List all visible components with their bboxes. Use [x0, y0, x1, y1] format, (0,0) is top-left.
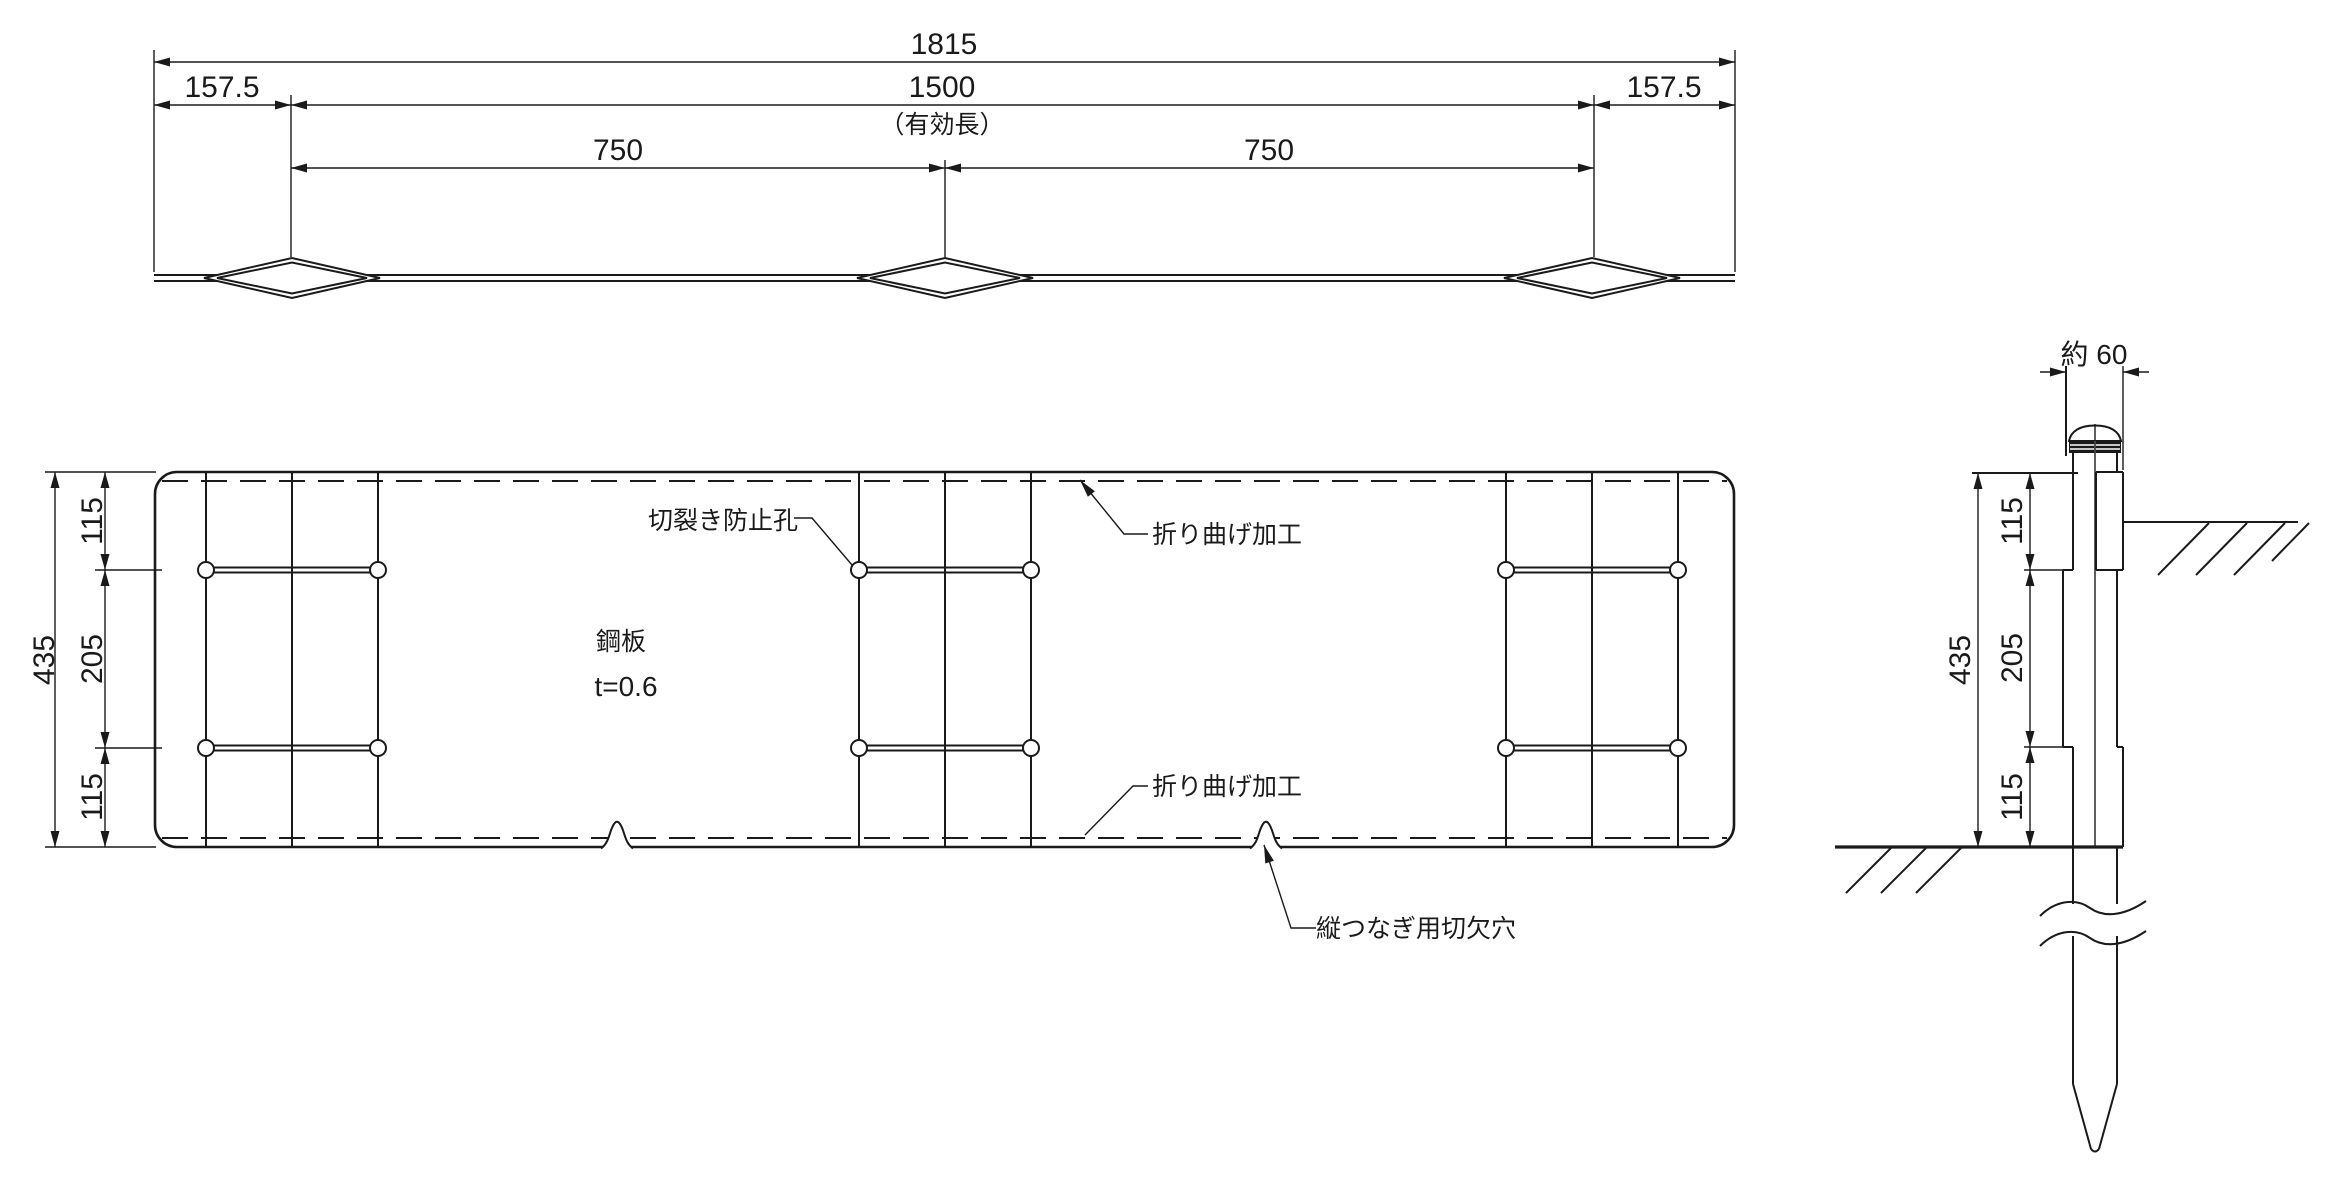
joining-notch-left — [601, 822, 633, 849]
side-view: 約 60 435 115 205 115 — [1835, 339, 2309, 1152]
dim-effective-length: 1500 — [909, 71, 976, 104]
dim-top-section: 115 — [76, 497, 109, 545]
ground-hatch-left — [1846, 848, 1961, 893]
dim-middle-section: 205 — [76, 634, 109, 684]
side-outline — [2063, 453, 2123, 1152]
label-thickness: t=0.6 — [594, 671, 657, 702]
dim-bottom-section: 115 — [76, 773, 109, 821]
label-fold-bottom: 折り曲げ加工 — [1152, 773, 1302, 801]
dim-left-margin: 157.5 — [184, 71, 259, 104]
label-joining-notch: 縦つなぎ用切欠穴 — [1316, 915, 1516, 943]
plan-view: 435 115 205 115 切裂き防止孔 鋼板 t=0.6 折り曲げ加工 折… — [28, 472, 1734, 943]
label-steel-plate: 鋼板 — [596, 628, 646, 656]
dim-stake-width: 約 60 — [2061, 339, 2128, 370]
side-extension-thick — [1972, 366, 2078, 473]
dim-right-margin: 157.5 — [1626, 71, 1701, 104]
dim-half-left: 750 — [593, 134, 643, 167]
dim-effective-note: （有効長） — [879, 111, 1004, 139]
technical-drawing-sheet: 1815 157.5 1500 （有効長） 157.5 750 750 — [0, 0, 2338, 1198]
diamond-stake-right — [1504, 258, 1680, 298]
slit-lines — [206, 568, 1678, 751]
top-view: 1815 157.5 1500 （有効長） 157.5 750 750 — [154, 28, 1735, 298]
label-tear-prevention-hole: 切裂き防止孔 — [648, 507, 798, 535]
break-wave-lower — [2040, 931, 2146, 946]
label-fold-top: 折り曲げ加工 — [1152, 521, 1302, 549]
drawing-svg: 1815 157.5 1500 （有効長） 157.5 750 750 — [0, 0, 2338, 1198]
dim-side-middle-section: 205 — [1996, 633, 2029, 683]
diamond-stake-left — [204, 258, 380, 298]
stake-fold-verticals — [206, 472, 1678, 847]
break-wave-upper — [2040, 901, 2146, 916]
dim-plate-height: 435 — [28, 635, 61, 685]
dim-side-bottom-section: 115 — [1996, 773, 2029, 821]
dim-side-top-section: 115 — [1996, 497, 2029, 545]
dim-overall-length: 1815 — [911, 28, 978, 61]
diamond-stake-middle — [857, 258, 1033, 298]
joining-notch-right — [1250, 822, 1282, 849]
tear-prevention-holes — [198, 562, 1686, 756]
ground-hatch-right — [2158, 523, 2309, 575]
dim-side-height: 435 — [1944, 635, 1977, 685]
dim-half-right: 750 — [1244, 134, 1294, 167]
